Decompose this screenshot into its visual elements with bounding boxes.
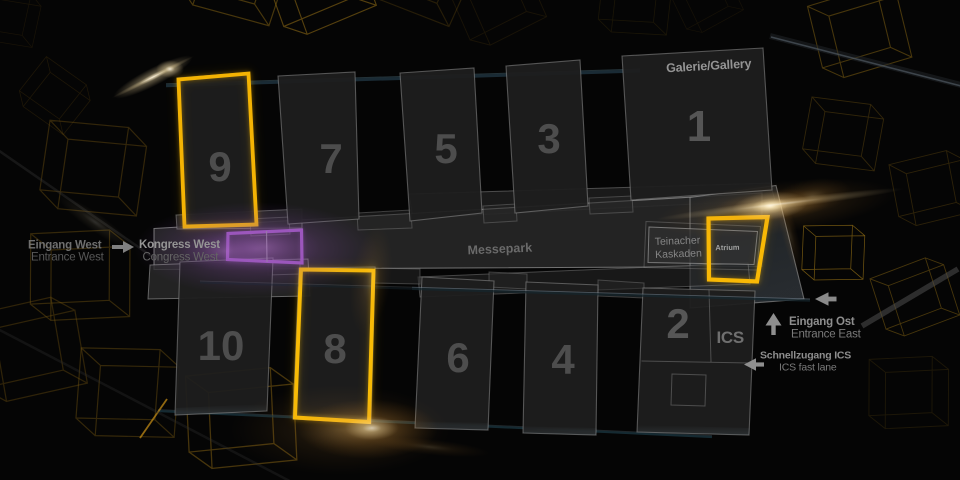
svg-text:Atrium: Atrium bbox=[715, 243, 740, 252]
svg-text:4: 4 bbox=[551, 336, 575, 383]
svg-text:5: 5 bbox=[434, 125, 457, 172]
svg-text:Congress West: Congress West bbox=[143, 252, 220, 264]
svg-text:9: 9 bbox=[208, 143, 231, 190]
svg-text:Eingang West: Eingang West bbox=[28, 240, 102, 252]
svg-text:Kongress West: Kongress West bbox=[139, 239, 220, 251]
svg-text:Entrance West: Entrance West bbox=[31, 252, 105, 264]
svg-text:Messepark: Messepark bbox=[467, 241, 532, 258]
svg-text:Kaskaden: Kaskaden bbox=[655, 247, 702, 261]
svg-text:10: 10 bbox=[198, 322, 245, 369]
svg-text:2: 2 bbox=[666, 300, 689, 347]
svg-text:Eingang Ost: Eingang Ost bbox=[789, 316, 855, 328]
svg-text:7: 7 bbox=[319, 135, 342, 182]
svg-text:3: 3 bbox=[537, 115, 560, 162]
svg-text:1: 1 bbox=[687, 102, 711, 151]
svg-text:ICS fast lane: ICS fast lane bbox=[779, 362, 837, 374]
svg-text:6: 6 bbox=[446, 334, 469, 381]
svg-text:Schnellzugang ICS: Schnellzugang ICS bbox=[760, 350, 851, 362]
svg-text:8: 8 bbox=[323, 325, 346, 372]
svg-text:Entrance East: Entrance East bbox=[791, 329, 862, 341]
svg-text:Teinacher: Teinacher bbox=[655, 234, 701, 248]
svg-text:ICS: ICS bbox=[717, 328, 744, 347]
